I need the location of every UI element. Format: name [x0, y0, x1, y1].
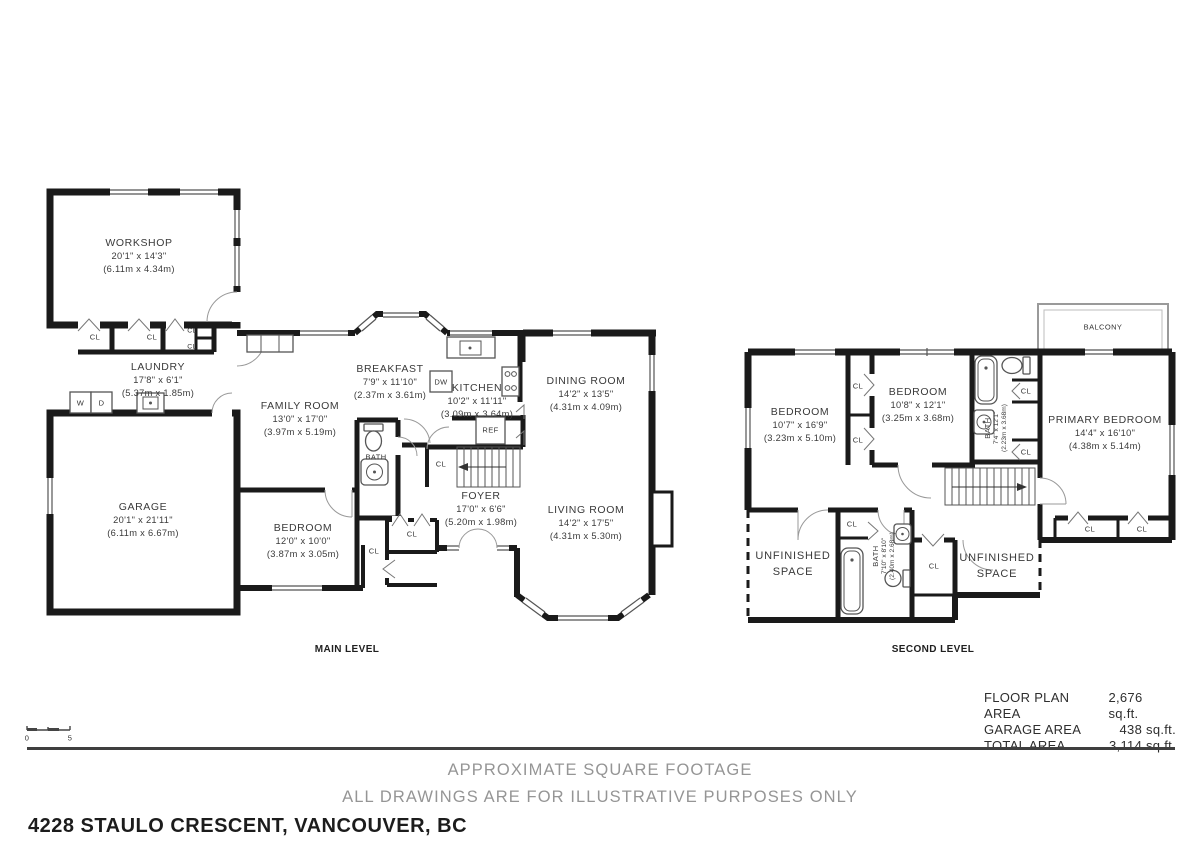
closet-label: CL [90, 333, 100, 342]
closet-label: CL [436, 460, 446, 469]
room-label-bedroom-mid: BEDROOM 10'8" x 12'1" (3.25m x 3.68m) [882, 386, 954, 424]
dishwasher-label: DW [434, 378, 447, 387]
area-row: GARAGE AREA 438 sq.ft. [984, 722, 1176, 738]
room-label-unfinished-right: UNFINISHED SPACE [959, 550, 1034, 582]
room-label-family-room: FAMILY ROOM 13'0" x 17'0" (3.97m x 5.19m… [261, 400, 340, 438]
floor-plan-page: WORKSHOP 20'1" x 14'3" (6.11m x 4.34m) L… [0, 0, 1200, 848]
room-label-unfinished-left: UNFINISHED SPACE [755, 548, 830, 580]
closet-label: CL [853, 436, 863, 445]
closet-label: CL [369, 547, 379, 556]
room-label-laundry: LAUNDRY 17'8" x 6'1" (5.37m x 1.85m) [122, 361, 194, 399]
scale-bar [27, 726, 70, 731]
washer-label: W [77, 399, 84, 408]
room-label-garage: GARAGE 20'1" x 21'11" (6.11m x 6.67m) [107, 501, 179, 539]
balcony-label: BALCONY [1084, 323, 1123, 332]
refrigerator-label: REF [482, 426, 498, 435]
room-label-bath-main: BATH [365, 453, 386, 462]
room-label-dining-room: DINING ROOM 14'2" x 13'5" (4.31m x 4.09m… [547, 375, 626, 413]
dryer-label: D [99, 399, 105, 408]
closet-label: CL [1137, 525, 1147, 534]
main-level-title: MAIN LEVEL [315, 644, 380, 655]
disclaimer-line-1: APPROXIMATE SQUARE FOOTAGE [448, 761, 753, 780]
property-address: 4228 STAULO CRESCENT, VANCOUVER, BC [28, 815, 467, 838]
scale-end-label: 5 [68, 734, 73, 743]
closet-label: CL [147, 333, 157, 342]
closet-label: CL [929, 562, 939, 571]
room-label-breakfast: BREAKFAST 7'9" x 11'10" (2.37m x 3.61m) [354, 363, 426, 401]
closet-label: CL [1085, 525, 1095, 534]
area-row: TOTAL AREA 3,114 sq.ft. [984, 738, 1176, 754]
main-level-stairs [457, 447, 520, 487]
scale-start-label: 0 [25, 734, 30, 743]
closet-label: CL [847, 520, 857, 529]
room-label-primary-bedroom: PRIMARY BEDROOM 14'4" x 16'10" (4.38m x … [1048, 414, 1162, 452]
room-label-kitchen: KITCHEN 10'2" x 11'11" (3.09m x 3.64m) [441, 382, 513, 420]
room-label-bath-top: BATH 7'4" x 12'1" (2.23m x 3.68m) [984, 404, 1009, 452]
room-label-workshop: WORKSHOP 20'1" x 14'3" (6.11m x 4.34m) [103, 237, 175, 275]
closet-label: CL [1021, 448, 1031, 457]
area-summary: FLOOR PLAN AREA 2,676 sq.ft. GARAGE AREA… [984, 690, 1176, 754]
closet-label: CL [853, 382, 863, 391]
room-label-foyer: FOYER 17'0" x 6'6" (5.20m x 1.98m) [445, 490, 517, 528]
closet-label: CL [407, 530, 417, 539]
room-label-bedroom-left: BEDROOM 10'7" x 16'9" (3.23m x 5.10m) [764, 406, 836, 444]
closet-label: CL [1021, 387, 1031, 396]
closet-label: CL [187, 328, 197, 335]
room-label-living-room: LIVING ROOM 14'2" x 17'5" (4.31m x 5.30m… [548, 504, 625, 542]
disclaimer-line-2: ALL DRAWINGS ARE FOR ILLUSTRATIVE PURPOS… [342, 788, 858, 807]
closet-label: CL [187, 344, 197, 351]
area-row: FLOOR PLAN AREA 2,676 sq.ft. [984, 690, 1176, 722]
room-label-bedroom-main: BEDROOM 12'0" x 10'0" (3.87m x 3.05m) [267, 522, 339, 560]
room-label-bath-bottom: BATH 7'10" x 8'10" (2.40m x 2.68m) [872, 532, 897, 580]
divider-line [27, 747, 1175, 750]
second-level-title: SECOND LEVEL [892, 644, 975, 655]
